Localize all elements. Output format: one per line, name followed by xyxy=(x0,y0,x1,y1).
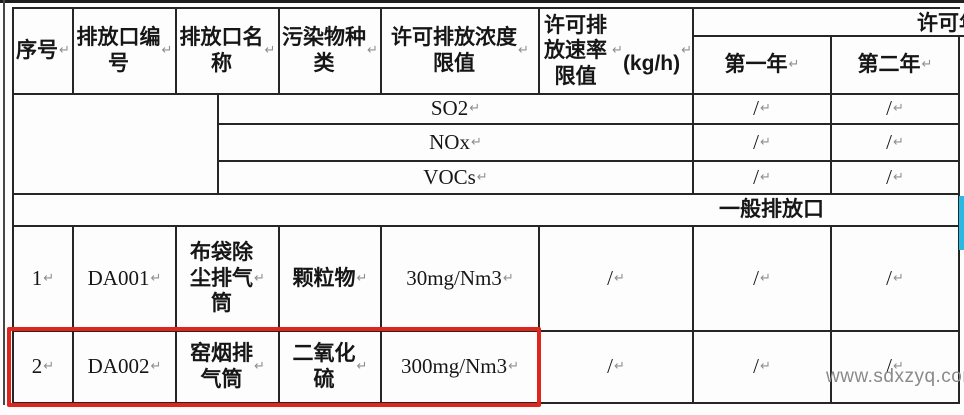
header-annual-group: 许可年 第一年↵ 第二年↵ xyxy=(694,9,960,95)
pollutant-band-rows: SO2↵ /↵ /↵ NOx↵ /↵ /↵ VOCs↵ /↵ /↵ xyxy=(219,95,960,195)
cell-r2-rate-limit: /↵ xyxy=(540,332,694,404)
cell-so2-year1: /↵ xyxy=(694,95,832,125)
table-row-vocs: VOCs↵ /↵ /↵ xyxy=(219,162,960,195)
cell-r1-conc-limit: 30mg/Nm3↵ xyxy=(382,227,540,332)
section-cell: 一般排放口↵ xyxy=(14,195,960,227)
cell-r2-outlet-no: DA002↵ xyxy=(74,332,177,404)
header-cell-conc-limit: 许可排放浓度 限值↵ xyxy=(382,9,540,95)
cell-pollutant-nox: NOx↵ xyxy=(219,125,694,162)
top-crop-line xyxy=(0,0,964,3)
cell-vocs-year2: /↵ xyxy=(832,162,960,195)
header-years-row: 第一年↵ 第二年↵ xyxy=(694,37,960,95)
emission-permit-table: 序号↵ 排放口编 号↵ 排放口名 称↵ 污染物种 类↵ 许可排放浓度 限值↵ 许… xyxy=(12,7,960,404)
cell-r1-seq: 1↵ xyxy=(14,227,74,332)
header-cell-pollutant: 污染物种 类↵ xyxy=(280,9,382,95)
cell-r2-pollutant: 二氧化 硫↵ xyxy=(280,332,382,404)
section-row: 一般排放口↵ xyxy=(14,195,960,227)
page-left-edge-line xyxy=(3,0,5,405)
merged-blank-cell xyxy=(14,95,219,195)
cell-r1-outlet-no: DA001↵ xyxy=(74,227,177,332)
right-edge-cyan-marker xyxy=(959,196,964,250)
header-cell-outlet-no: 排放口编 号↵ xyxy=(74,9,177,95)
header-cell-outlet-name: 排放口名 称↵ xyxy=(177,9,280,95)
table-row-nox: NOx↵ /↵ /↵ xyxy=(219,125,960,162)
cell-pollutant-vocs: VOCs↵ xyxy=(219,162,694,195)
cell-so2-year2: /↵ xyxy=(832,95,960,125)
cell-r1-outlet-name: 布袋除 尘排气 筒↵ xyxy=(177,227,280,332)
cell-r2-seq: 2↵ xyxy=(14,332,74,404)
table-row-so2: SO2↵ /↵ /↵ xyxy=(219,95,960,125)
table-row-1: 1↵ DA001↵ 布袋除 尘排气 筒↵ 颗粒物↵ 30mg/Nm3↵ /↵ /… xyxy=(14,227,960,332)
cell-r2-outlet-name: 窑烟排 气筒↵ xyxy=(177,332,280,404)
cell-nox-year1: /↵ xyxy=(694,125,832,162)
cell-r2-conc-limit: 300mg/Nm3↵ xyxy=(382,332,540,404)
section-label: 一般排放口↵ xyxy=(719,197,964,223)
header-cell-year1: 第一年↵ xyxy=(694,37,832,95)
header-cell-annual-span-clipped: 许可年 xyxy=(694,9,964,37)
cell-vocs-year1: /↵ xyxy=(694,162,832,195)
header-cell-year2: 第二年↵ xyxy=(832,37,960,95)
cell-r1-pollutant: 颗粒物↵ xyxy=(280,227,382,332)
table-header-row: 序号↵ 排放口编 号↵ 排放口名 称↵ 污染物种 类↵ 许可排放浓度 限值↵ 许… xyxy=(14,9,960,95)
table-row-2: 2↵ DA002↵ 窑烟排 气筒↵ 二氧化 硫↵ 300mg/Nm3↵ /↵ /… xyxy=(14,332,960,404)
cell-r1-year2: /↵ xyxy=(832,227,960,332)
cell-nox-year2: /↵ xyxy=(832,125,960,162)
header-cell-rate-limit: 许可排放速率 限值↵ (kg/h)↵ xyxy=(540,9,694,95)
cell-r1-year1: /↵ xyxy=(694,227,832,332)
header-cell-seq: 序号↵ xyxy=(14,9,74,95)
cell-pollutant-so2: SO2↵ xyxy=(219,95,694,125)
cell-r2-year1: /↵ xyxy=(694,332,832,404)
watermark-text: www.sdxzyq.com xyxy=(826,366,964,388)
pollutant-band: SO2↵ /↵ /↵ NOx↵ /↵ /↵ VOCs↵ /↵ /↵ xyxy=(14,95,960,195)
document-screenshot: 序号↵ 排放口编 号↵ 排放口名 称↵ 污染物种 类↵ 许可排放浓度 限值↵ 许… xyxy=(0,0,964,415)
cell-r1-rate-limit: /↵ xyxy=(540,227,694,332)
